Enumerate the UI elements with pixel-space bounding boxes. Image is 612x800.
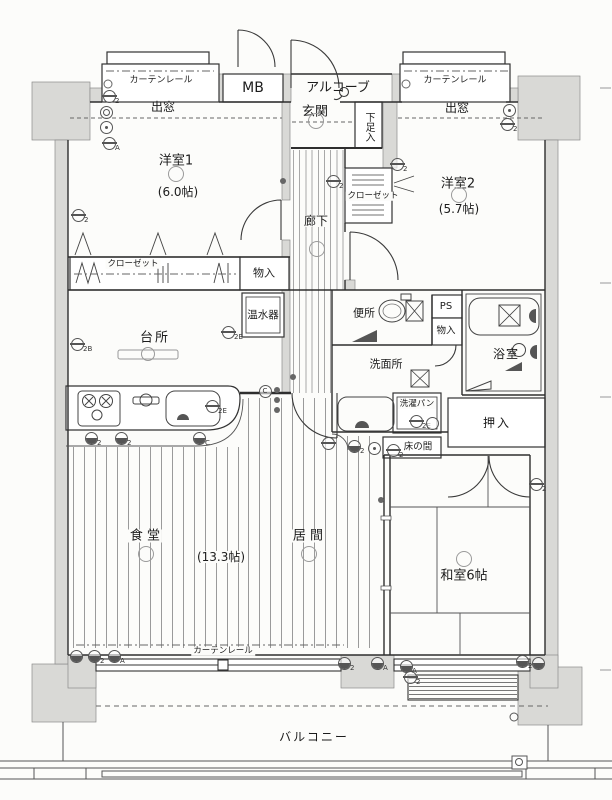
laundry-pan-box (393, 393, 441, 433)
washer-mark (411, 370, 429, 387)
bedroom1-door (241, 200, 281, 240)
entrance-door-handle (340, 88, 349, 97)
pillar-top-right (518, 76, 580, 140)
bay-window-sill-left (107, 52, 209, 64)
wall-right (545, 140, 558, 667)
bath-fittings (466, 344, 537, 392)
storage2-door (435, 345, 456, 366)
bay-window-right (400, 64, 510, 102)
tatami-lines (390, 455, 530, 655)
hanger-pipe-marks (75, 233, 223, 255)
kitchen-light-icon (118, 348, 178, 361)
margin-ticks (600, 88, 611, 670)
kitchen-counter (66, 386, 240, 430)
floor-plan-drawing (0, 0, 612, 800)
partition-tick (381, 586, 391, 590)
partition-tick (381, 516, 391, 520)
oshiire-box (448, 398, 545, 447)
toilet-door-mark (352, 330, 377, 342)
pillar-top-left (32, 82, 90, 140)
floor-plan-page: カーテンレール 出窓 MB アルコーブ カーテンレール 出窓 玄関 下足入 洋室… (0, 0, 612, 800)
ps-box (432, 295, 462, 318)
water-heater-box (242, 293, 284, 337)
balcony-windows (96, 659, 530, 700)
bay-window-left (102, 64, 219, 102)
shutter-box (408, 675, 518, 700)
oshiire-doors (448, 456, 530, 497)
wash-basin-icon (338, 397, 394, 431)
bedroom2-door (350, 232, 398, 280)
meter-box (223, 74, 283, 102)
mb-door (238, 30, 275, 67)
bath-unit (466, 294, 541, 391)
bathtub-icon (469, 298, 539, 335)
hall-living-door (292, 393, 337, 438)
shoe-box (355, 102, 382, 148)
bay-window-sill-right (403, 52, 505, 64)
entrance-door (291, 40, 339, 88)
storage2-box (432, 318, 462, 345)
storage1-box (240, 257, 289, 290)
toilet-icon (379, 294, 423, 322)
wall-lines (68, 74, 545, 655)
